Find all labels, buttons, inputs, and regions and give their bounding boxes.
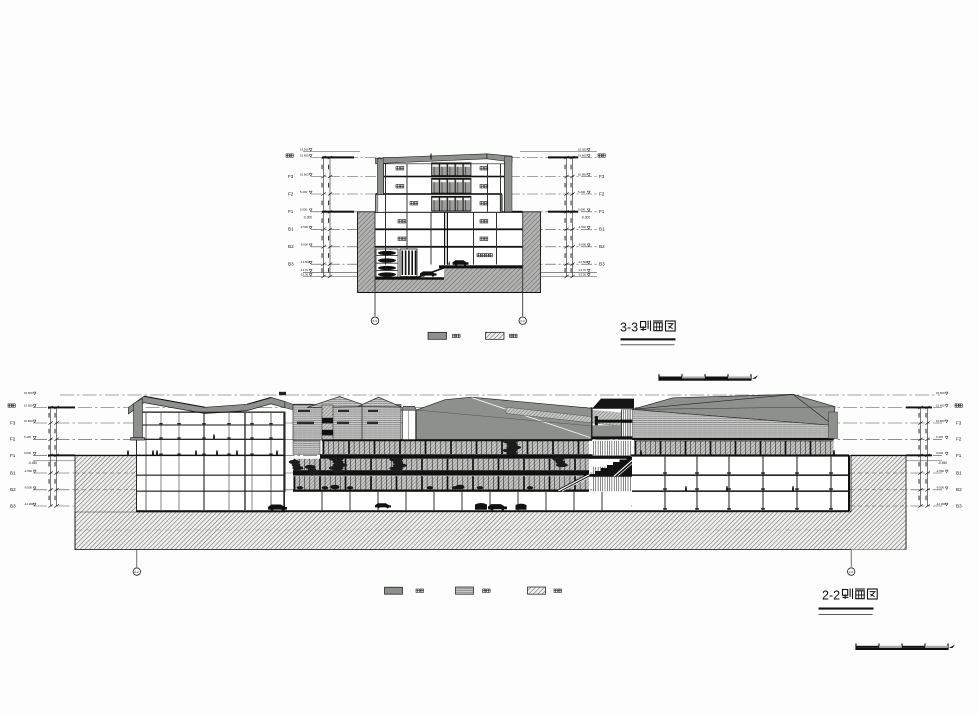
svg-text:-9.000: -9.000 <box>578 243 586 247</box>
svg-text:5.400: 5.400 <box>24 435 31 439</box>
svg-text:B2: B2 <box>956 487 962 492</box>
svg-text:-4.500: -4.500 <box>24 469 32 473</box>
svg-text:B3: B3 <box>10 503 16 508</box>
svg-text:B3: B3 <box>956 503 962 508</box>
svg-text:19.500: 19.500 <box>578 147 587 151</box>
svg-text:0.000: 0.000 <box>300 208 307 212</box>
svg-text:-14.000: -14.000 <box>24 502 34 506</box>
svg-text:19.500: 19.500 <box>24 391 33 395</box>
svg-text:19.500: 19.500 <box>936 391 945 395</box>
svg-text:3-3: 3-3 <box>372 319 377 323</box>
svg-text:10.800: 10.800 <box>24 419 33 423</box>
svg-text:-13.500: -13.500 <box>300 260 310 264</box>
svg-text:3-3: 3-3 <box>520 319 525 323</box>
svg-text:-15.30: -15.30 <box>578 272 586 276</box>
svg-text:F1: F1 <box>956 453 962 458</box>
svg-text:-0.300: -0.300 <box>303 215 312 219</box>
svg-text:2-2: 2-2 <box>134 570 139 574</box>
svg-text:-4.500: -4.500 <box>300 225 308 229</box>
svg-text:15.600: 15.600 <box>300 153 309 157</box>
svg-text:F2: F2 <box>956 437 962 442</box>
svg-text:-9.500: -9.500 <box>936 486 944 490</box>
svg-text:-0.450: -0.450 <box>938 461 947 465</box>
svg-text:15.600: 15.600 <box>936 403 945 407</box>
svg-text:F2: F2 <box>599 191 605 196</box>
svg-text:B1: B1 <box>10 470 16 475</box>
svg-text:F1: F1 <box>288 209 294 214</box>
svg-text:B2: B2 <box>288 244 294 249</box>
svg-text:F2: F2 <box>288 191 294 196</box>
svg-text:B1: B1 <box>956 470 962 475</box>
svg-text:F3: F3 <box>288 174 294 179</box>
svg-text:-4.500: -4.500 <box>936 469 944 473</box>
svg-text:F3: F3 <box>10 420 16 425</box>
svg-text:3-3: 3-3 <box>620 321 638 335</box>
svg-text:B2: B2 <box>10 487 16 492</box>
svg-text:B3: B3 <box>288 262 294 267</box>
svg-text:15.600: 15.600 <box>578 153 587 157</box>
svg-text:-13.500: -13.500 <box>578 260 588 264</box>
svg-text:10.800: 10.800 <box>936 419 945 423</box>
svg-text:0.000: 0.000 <box>936 451 943 455</box>
svg-text:-14.000: -14.000 <box>936 502 946 506</box>
svg-text:F3: F3 <box>956 420 962 425</box>
svg-text:B1: B1 <box>288 227 294 232</box>
svg-text:10.800: 10.800 <box>300 172 309 176</box>
svg-text:F2: F2 <box>10 437 16 442</box>
svg-text:-4.500: -4.500 <box>578 225 586 229</box>
svg-text:5.400: 5.400 <box>578 190 585 194</box>
svg-text:10.800: 10.800 <box>578 172 587 176</box>
svg-text:-9.500: -9.500 <box>24 486 32 490</box>
svg-text:15.600: 15.600 <box>24 403 33 407</box>
svg-text:-9.000: -9.000 <box>300 243 308 247</box>
svg-text:F1: F1 <box>599 209 605 214</box>
svg-text:19.500: 19.500 <box>300 147 309 151</box>
svg-text:5.400: 5.400 <box>300 190 307 194</box>
svg-text:-0.450: -0.450 <box>28 461 37 465</box>
svg-text:B2: B2 <box>599 244 605 249</box>
svg-text:2-2: 2-2 <box>822 589 840 603</box>
svg-text:B3: B3 <box>599 262 605 267</box>
svg-text:0.000: 0.000 <box>578 208 585 212</box>
svg-text:5.400: 5.400 <box>936 435 943 439</box>
svg-text:2-2: 2-2 <box>849 570 854 574</box>
svg-text:0.000: 0.000 <box>24 451 31 455</box>
svg-text:F1: F1 <box>10 453 16 458</box>
svg-text:-0.300: -0.300 <box>581 215 590 219</box>
svg-text:F3: F3 <box>599 174 605 179</box>
svg-text:B1: B1 <box>599 227 605 232</box>
svg-text:-15.30: -15.30 <box>300 272 308 276</box>
